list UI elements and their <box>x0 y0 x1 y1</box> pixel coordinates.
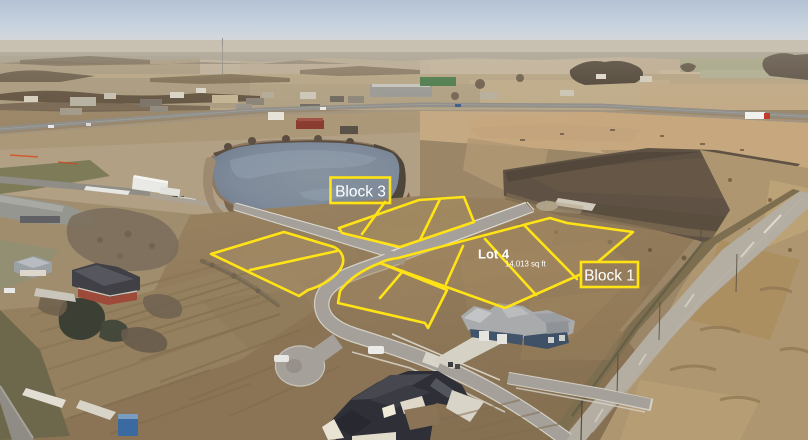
svg-text:Block 3: Block 3 <box>335 184 386 201</box>
svg-text:Block 1: Block 1 <box>584 268 635 285</box>
svg-text:14,013 sq ft: 14,013 sq ft <box>505 260 547 269</box>
